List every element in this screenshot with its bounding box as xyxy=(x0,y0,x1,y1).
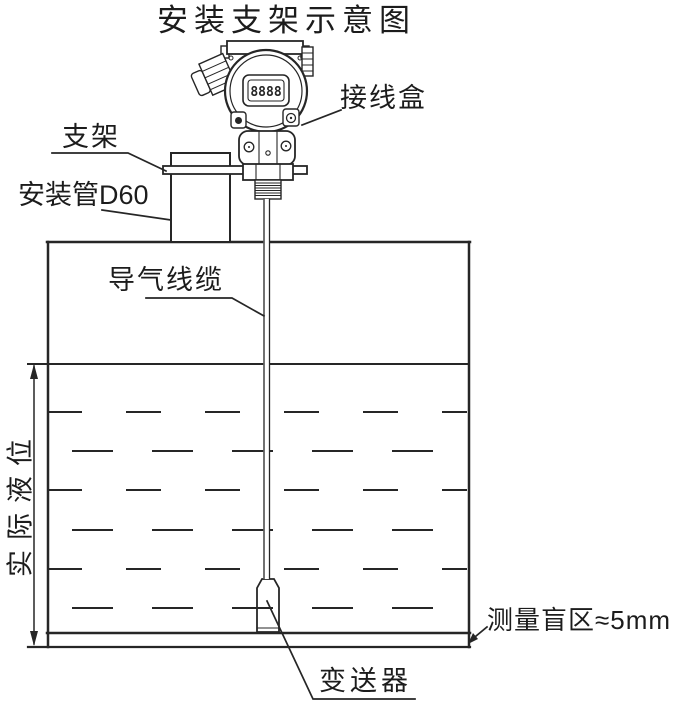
mounting-pipe-leader xyxy=(102,210,171,220)
diagram-title: 安装支架示意图 xyxy=(157,5,416,36)
probe-icon xyxy=(257,579,279,632)
tank-outline xyxy=(28,242,470,647)
arrow-up-icon xyxy=(30,364,38,379)
transmitter-label: 变送器 xyxy=(319,668,412,695)
cable-line xyxy=(263,199,270,579)
air-cable-label: 导气线缆 xyxy=(108,267,224,294)
installation-diagram: 8888 xyxy=(0,0,700,708)
air-cable-leader xyxy=(146,298,264,316)
mounting-pipe-label: 安装管D60 xyxy=(18,182,149,209)
junction-box-label: 接线盒 xyxy=(340,85,427,112)
display-digits: 8888 xyxy=(250,85,281,100)
blind-zone-label: 测量盲区≈5mm xyxy=(487,607,671,633)
lcd-display: 8888 xyxy=(243,75,289,106)
arrow-down-icon xyxy=(30,631,38,646)
bracket-leader xyxy=(52,153,166,171)
yoke xyxy=(239,131,295,165)
actual-level-label: 实际液位 xyxy=(8,429,35,577)
bracket-label: 支架 xyxy=(62,124,120,151)
hex-nut-icon xyxy=(243,164,293,180)
liquid-dashes xyxy=(48,412,466,608)
side-connector-icon xyxy=(302,47,313,76)
junction-box-leader xyxy=(302,110,341,125)
threaded-stem-icon xyxy=(255,180,281,199)
screw-dot-icon xyxy=(235,117,242,124)
